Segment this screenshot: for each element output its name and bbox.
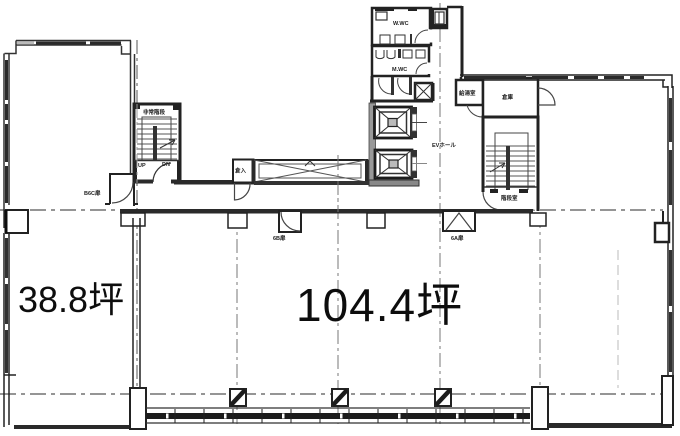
svg-text:非常階段: 非常階段 bbox=[143, 108, 166, 116]
svg-text:EVホール: EVホール bbox=[432, 142, 456, 149]
svg-text:B6C扉: B6C扉 bbox=[84, 189, 101, 197]
svg-text:6A扉: 6A扉 bbox=[451, 234, 464, 242]
svg-text:給湯室: 給湯室 bbox=[459, 89, 476, 97]
svg-text:W.WC: W.WC bbox=[393, 21, 409, 27]
svg-text:倉庫: 倉庫 bbox=[501, 93, 514, 101]
svg-text:38.8坪: 38.8坪 bbox=[18, 279, 124, 320]
svg-text:倉入: 倉入 bbox=[234, 167, 247, 175]
svg-text:6B扉: 6B扉 bbox=[273, 234, 286, 242]
svg-text:104.4坪: 104.4坪 bbox=[296, 279, 463, 331]
svg-text:DN: DN bbox=[162, 162, 170, 168]
svg-text:M.WC: M.WC bbox=[392, 67, 407, 73]
svg-text:UP: UP bbox=[138, 163, 146, 169]
svg-text:階段室: 階段室 bbox=[501, 194, 518, 202]
